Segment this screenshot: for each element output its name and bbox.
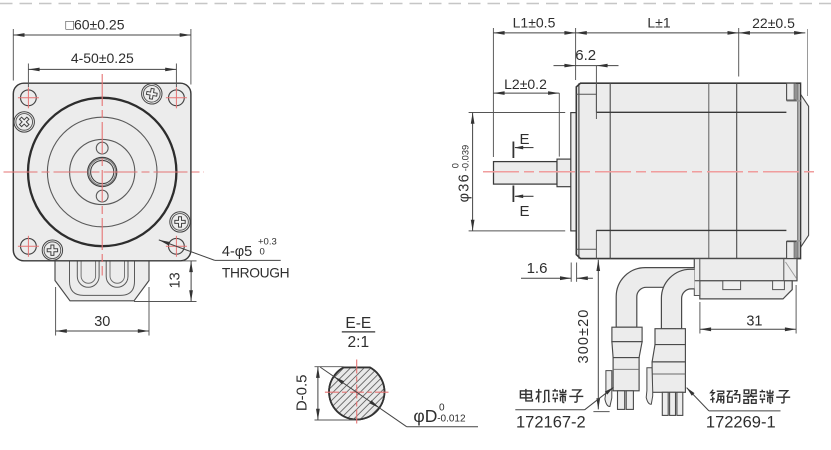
svg-text:300±20: 300±20 bbox=[576, 309, 592, 364]
svg-text:0: 0 bbox=[439, 402, 445, 413]
svg-text:172167-2: 172167-2 bbox=[516, 413, 586, 431]
svg-text:-0.012: -0.012 bbox=[437, 413, 466, 424]
svg-text:4-φ5: 4-φ5 bbox=[222, 244, 252, 260]
svg-text:6.2: 6.2 bbox=[575, 47, 596, 64]
svg-text:THROUGH: THROUGH bbox=[222, 266, 289, 281]
svg-text:172269-1: 172269-1 bbox=[706, 414, 776, 432]
svg-text:31: 31 bbox=[746, 314, 762, 330]
svg-text:E: E bbox=[519, 131, 529, 148]
svg-text:φ36: φ36 bbox=[457, 173, 473, 202]
svg-text:E: E bbox=[519, 203, 529, 220]
svg-text:E-E: E-E bbox=[345, 315, 371, 332]
svg-text:2:1: 2:1 bbox=[348, 334, 370, 351]
svg-text:0: 0 bbox=[451, 163, 461, 168]
svg-text:13: 13 bbox=[168, 272, 184, 288]
svg-text:D-0.5: D-0.5 bbox=[293, 374, 310, 411]
svg-text:30: 30 bbox=[94, 314, 110, 330]
svg-text:-0.039: -0.039 bbox=[461, 145, 471, 171]
svg-text:L±1: L±1 bbox=[647, 15, 670, 31]
svg-text:0: 0 bbox=[260, 246, 265, 257]
svg-text:φD: φD bbox=[413, 406, 437, 426]
svg-text:22±0.5: 22±0.5 bbox=[752, 15, 795, 31]
svg-text:□60±0.25: □60±0.25 bbox=[66, 17, 125, 33]
svg-text:L1±0.5: L1±0.5 bbox=[513, 15, 556, 31]
svg-text:1.6: 1.6 bbox=[527, 260, 548, 277]
svg-text:4-50±0.25: 4-50±0.25 bbox=[71, 50, 134, 66]
svg-text:L2±0.2: L2±0.2 bbox=[504, 76, 547, 92]
